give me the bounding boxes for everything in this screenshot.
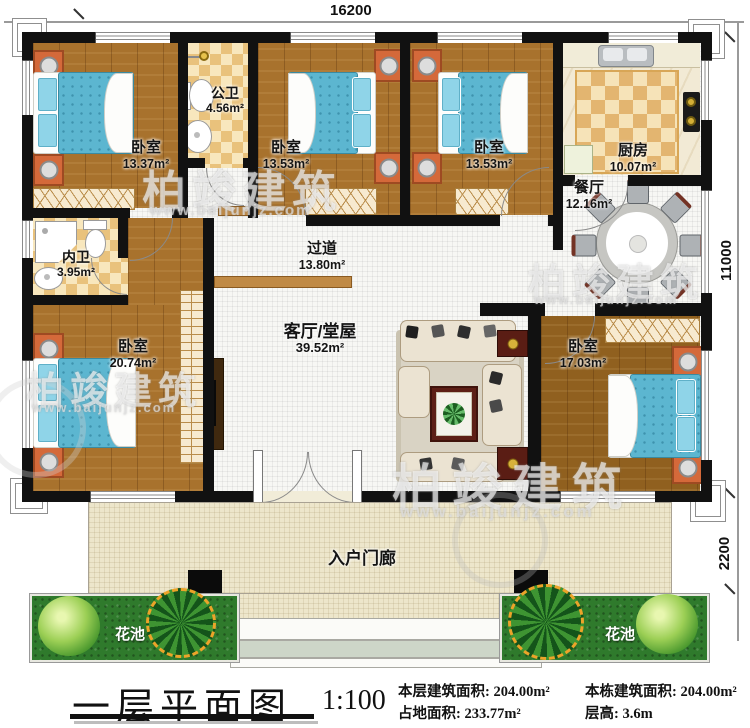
- hall-cabinet: [214, 276, 352, 288]
- title-underline-shadow: [74, 721, 318, 724]
- stove-burner: [686, 116, 696, 126]
- dimension-tick: [724, 31, 735, 42]
- title-underline: [70, 714, 314, 719]
- dimension-line-right: [737, 21, 739, 641]
- wall: [548, 215, 563, 226]
- stat-line: 占地面积: 233.77m²: [398, 703, 550, 725]
- stats-col1: 本层建筑面积: 204.00m² 占地面积: 233.77m²: [398, 681, 550, 725]
- sofa-pillow: [457, 325, 471, 339]
- window: [90, 491, 177, 502]
- pillow: [676, 416, 696, 452]
- porch-slab: [237, 594, 535, 620]
- room-label-public-bath: 公卫4.56m²: [206, 86, 244, 115]
- nightstand: [672, 346, 703, 377]
- wall: [22, 258, 33, 360]
- nightstand: [33, 154, 64, 186]
- flowerbed-label: 花池: [115, 627, 145, 644]
- stat-line: 本栋建筑面积: 204.00m²: [585, 681, 737, 703]
- flowerbed-label: 花池: [605, 627, 635, 644]
- floor-plan: 16200 11000 2200: [0, 0, 750, 728]
- wall: [203, 218, 214, 491]
- watermark-url: www.baijunjz.com: [150, 202, 311, 219]
- room-label-ensuite-bath: 内卫3.95m²: [57, 250, 95, 279]
- window: [95, 32, 172, 43]
- sofa-pillow: [431, 324, 445, 338]
- armchair: [398, 366, 430, 418]
- room-label-hallway: 过道13.80m²: [299, 241, 346, 272]
- watermark-url: www.baijunjz.com: [534, 292, 678, 307]
- wall: [655, 491, 712, 502]
- window: [701, 350, 712, 462]
- plant-icon: [443, 403, 465, 425]
- pillow: [676, 379, 696, 415]
- wall: [170, 32, 290, 43]
- dimension-tick: [73, 8, 84, 19]
- nightstand: [412, 152, 442, 184]
- window: [22, 60, 33, 117]
- wall: [522, 32, 608, 43]
- bed-sheet: [608, 375, 638, 457]
- sink-basin: [627, 48, 647, 61]
- window: [290, 32, 377, 43]
- fridge: [564, 145, 593, 174]
- wardrobe: [33, 188, 135, 210]
- step: [230, 618, 542, 640]
- step: [230, 640, 542, 658]
- plan-scale: 1:100: [322, 685, 386, 717]
- palm-tree-icon: [146, 588, 216, 658]
- sink-drain: [194, 132, 200, 138]
- stove-burner: [686, 97, 696, 107]
- room-label-living: 客厅/堂屋39.52m²: [284, 322, 357, 356]
- tree-icon: [636, 594, 698, 654]
- wall: [118, 218, 128, 258]
- room-label-bedroom-right: 卧室17.03m²: [560, 339, 607, 370]
- dimension-tick: [724, 583, 735, 594]
- pillow: [441, 77, 461, 112]
- wall: [22, 115, 33, 220]
- watermark-url: www.baijunjz.com: [32, 400, 176, 415]
- dimension-right-upper: 11000: [718, 240, 735, 281]
- shower-drain: [42, 228, 48, 234]
- wall: [628, 175, 712, 186]
- window: [437, 32, 524, 43]
- palm-tree-icon: [508, 584, 584, 660]
- sofa-pillow: [489, 399, 503, 413]
- sink-basin: [603, 48, 623, 61]
- dimension-top: 16200: [330, 2, 372, 19]
- pillow: [352, 77, 372, 112]
- wall: [22, 32, 33, 60]
- dimension-tick: [724, 487, 735, 498]
- dimension-line-top: [4, 21, 744, 23]
- room-label-bedroom-tr: 卧室13.53m²: [466, 140, 513, 171]
- wall: [400, 43, 410, 226]
- step: [230, 658, 542, 668]
- dimension-right-lower: 2200: [716, 537, 733, 570]
- wall: [375, 32, 437, 43]
- stats-col2: 本栋建筑面积: 204.00m² 层高: 3.6m: [585, 681, 737, 725]
- window: [701, 60, 712, 122]
- side-cabinet: [497, 330, 528, 357]
- window: [22, 220, 33, 260]
- shower-head-icon: [199, 51, 209, 61]
- room-label-dining: 餐厅12.16m²: [566, 180, 613, 211]
- pillow: [352, 113, 372, 148]
- tree-icon: [38, 596, 100, 656]
- dining-table-center: [629, 235, 647, 253]
- wall: [175, 491, 255, 502]
- pillow: [37, 77, 58, 112]
- sofa-pillow: [405, 325, 419, 339]
- wall: [22, 295, 128, 305]
- wall: [701, 32, 712, 60]
- pillow: [441, 113, 461, 148]
- stat-line: 本层建筑面积: 204.00m²: [398, 681, 550, 703]
- sofa-pillow: [483, 324, 497, 338]
- room-label-porch: 入户门廊: [328, 549, 396, 568]
- watermark-url: www.baijunjz.com: [400, 502, 595, 522]
- sink-drain: [44, 274, 50, 280]
- room-label-kitchen: 厨房10.07m²: [610, 143, 657, 174]
- pillow: [37, 113, 58, 148]
- wardrobe: [605, 318, 700, 343]
- window: [608, 32, 680, 43]
- stat-line: 层高: 3.6m: [585, 703, 737, 725]
- wall: [22, 491, 90, 502]
- wall: [22, 208, 130, 218]
